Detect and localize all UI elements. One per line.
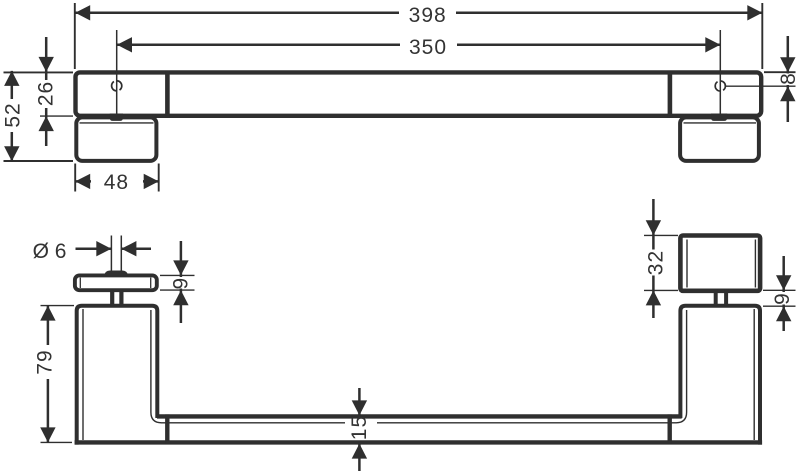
svg-text:9: 9 (771, 293, 794, 305)
svg-text:350: 350 (409, 36, 447, 59)
svg-text:32: 32 (644, 250, 667, 275)
svg-text:8: 8 (777, 73, 800, 85)
svg-text:52: 52 (2, 102, 25, 127)
svg-text:398: 398 (409, 4, 447, 27)
svg-text:Ø 6: Ø 6 (33, 240, 67, 263)
svg-text:9: 9 (170, 278, 193, 290)
svg-text:26: 26 (35, 81, 58, 106)
svg-text:15: 15 (348, 415, 371, 440)
svg-text:48: 48 (104, 171, 129, 194)
svg-text:79: 79 (34, 349, 57, 374)
